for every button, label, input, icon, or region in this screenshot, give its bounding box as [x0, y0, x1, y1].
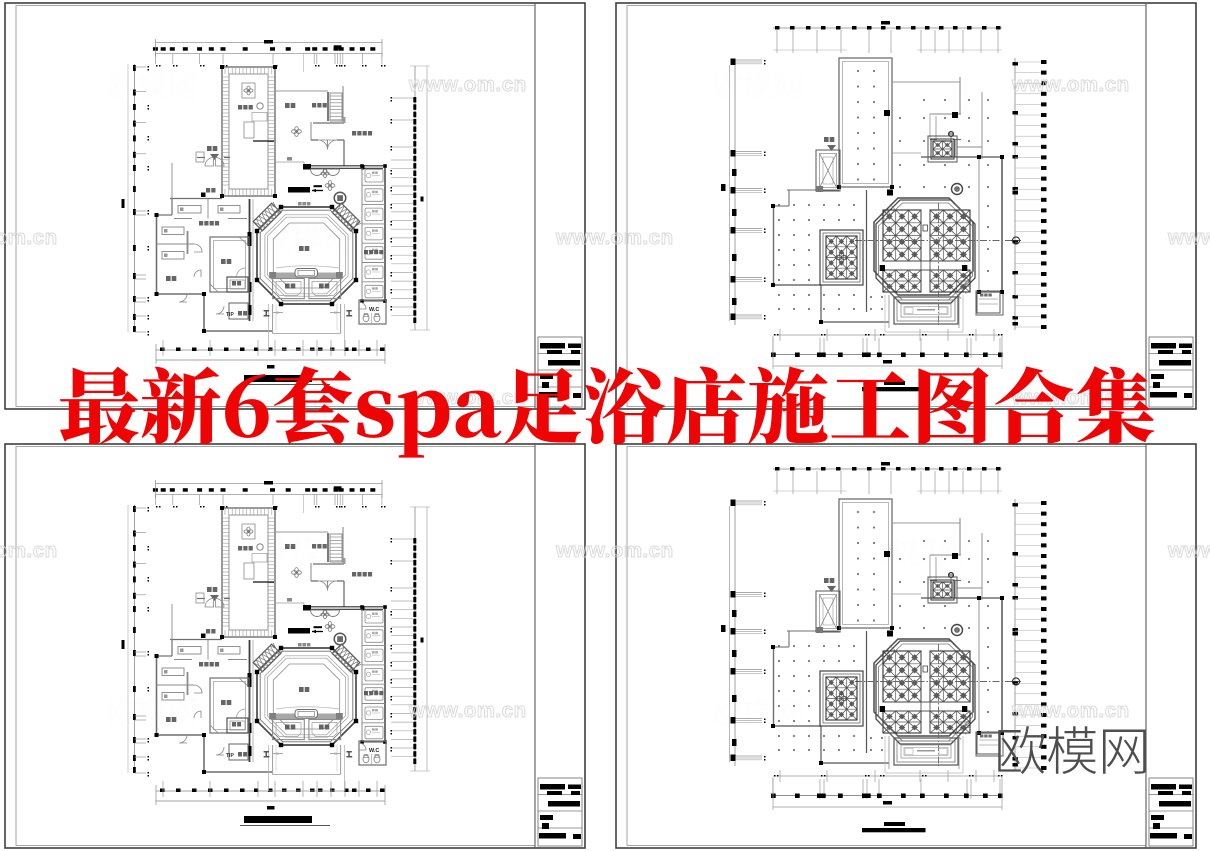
svg-text:TIP: TIP [226, 312, 234, 318]
svg-text:W.C: W.C [369, 307, 379, 313]
svg-text:www.om.cn: www.om.cn [408, 73, 527, 96]
svg-text:www.om.cn: www.om.cn [1011, 73, 1130, 96]
svg-text:www.om.cn: www.om.cn [0, 539, 58, 562]
svg-text:www.om.cn: www.om.cn [1011, 699, 1130, 722]
svg-text:www.om.cn: www.om.cn [1167, 539, 1210, 562]
svg-text:www.om.cn: www.om.cn [555, 226, 674, 249]
svg-text:www.om.cn: www.om.cn [408, 699, 527, 722]
svg-text:www.om.cn: www.om.cn [555, 539, 674, 562]
svg-text:www.om.cn: www.om.cn [0, 226, 58, 249]
svg-text:www.om.cn: www.om.cn [1167, 226, 1210, 249]
